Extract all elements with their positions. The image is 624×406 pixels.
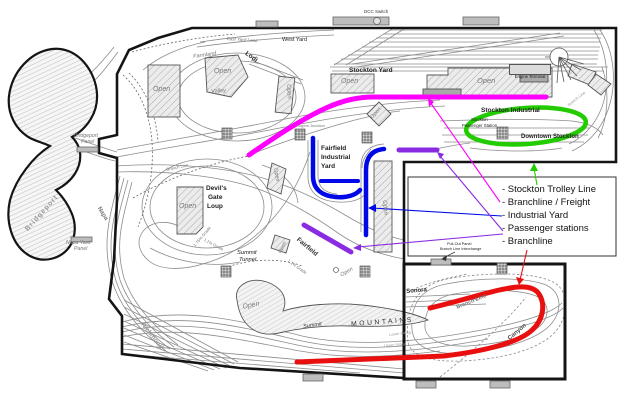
mountain-ridge bbox=[236, 280, 428, 334]
fairfield-industrial-yard-label-2: Industrial bbox=[321, 155, 350, 162]
devils-gate-loup-label-1: Devil's bbox=[206, 186, 227, 193]
arrowhead bbox=[353, 244, 361, 251]
stockton-yard-label: Stockton Yard bbox=[349, 68, 393, 75]
grid-icon bbox=[497, 127, 508, 139]
tab bbox=[303, 374, 323, 381]
stockton-passenger-station-label-1: Stockton bbox=[471, 118, 488, 122]
stockton-passenger-station-label-2: Passenger Station bbox=[462, 124, 497, 128]
fairfield-industrial-yard-label-3: Yard bbox=[321, 164, 335, 171]
bridgeport-panel-tab bbox=[77, 147, 98, 152]
rogers-junction-label: Rogers Junction bbox=[296, 124, 325, 128]
grid-icon bbox=[295, 129, 305, 140]
pull-out-panel-tab bbox=[431, 259, 451, 265]
devils-gate-loup-label-3: Loup bbox=[207, 204, 223, 211]
bridgeport-staging-blob bbox=[8, 49, 97, 260]
open-label: Open bbox=[179, 203, 196, 210]
devils-gate-loup-label-2: Gate bbox=[208, 195, 222, 202]
summit-tunnel-label-1: Summit bbox=[237, 251, 257, 257]
open-label: Open bbox=[272, 168, 280, 182]
napa-yard-panel-label-2: Panel bbox=[74, 247, 87, 252]
track-plan-diagram: DCC Switch East Yard Lead West Yard Lodi… bbox=[0, 0, 624, 406]
tab bbox=[490, 381, 510, 388]
grid-icon bbox=[360, 266, 370, 277]
small-circle-icon bbox=[334, 268, 339, 273]
downtown-stockton-label: Downtown Stockton bbox=[521, 134, 579, 140]
legend-item-stockton-trolley-line: - Stockton Trolley Line bbox=[502, 183, 596, 196]
bridgeport-panel-label-2: Panel bbox=[81, 140, 94, 145]
summit-tunnel-label-2: Tunnel bbox=[239, 258, 256, 264]
open-label: Open bbox=[381, 200, 388, 215]
dcc-switch-icon bbox=[374, 18, 381, 25]
arrowhead bbox=[437, 152, 444, 159]
stockton-industrial-label: Stockton Industrial bbox=[481, 108, 540, 115]
arrowhead bbox=[530, 163, 538, 171]
legend-item-industrial-yard: - Industrial Yard bbox=[502, 209, 596, 222]
legend-item-branchline-freight: - Branchline / Freight bbox=[502, 196, 596, 209]
open-label: Open bbox=[477, 77, 495, 85]
open-label: Open bbox=[341, 78, 358, 85]
grid-icon bbox=[497, 263, 507, 274]
tab bbox=[416, 381, 436, 388]
open-label: Open bbox=[285, 84, 292, 99]
legend-item-branchline: - Branchline bbox=[502, 235, 596, 248]
grid-icon bbox=[362, 132, 372, 143]
grid-icon bbox=[222, 128, 232, 139]
legend-item-passenger-stations: - Passenger stations bbox=[502, 222, 596, 235]
grid-icon bbox=[221, 266, 231, 277]
west-yard-label: West Yard bbox=[282, 38, 307, 44]
pull-out-panel-label-2: Branch Line Interchange bbox=[440, 248, 481, 252]
engine-terminal-label: Engine Terminal bbox=[515, 74, 546, 79]
arrowhead bbox=[516, 277, 524, 285]
open-area bbox=[177, 187, 203, 234]
legend: - Stockton Trolley Line - Branchline / F… bbox=[502, 183, 596, 248]
open-label: Open bbox=[153, 86, 170, 93]
arrowhead bbox=[368, 204, 376, 212]
tab bbox=[463, 17, 499, 25]
dcc-switch-label: DCC Switch bbox=[364, 10, 388, 15]
open-label: Open bbox=[214, 68, 231, 75]
tab bbox=[256, 21, 278, 27]
engine-terminal-box: Engine Terminal bbox=[509, 64, 551, 75]
fairfield-industrial-yard-label-1: Fairfield bbox=[321, 146, 346, 153]
